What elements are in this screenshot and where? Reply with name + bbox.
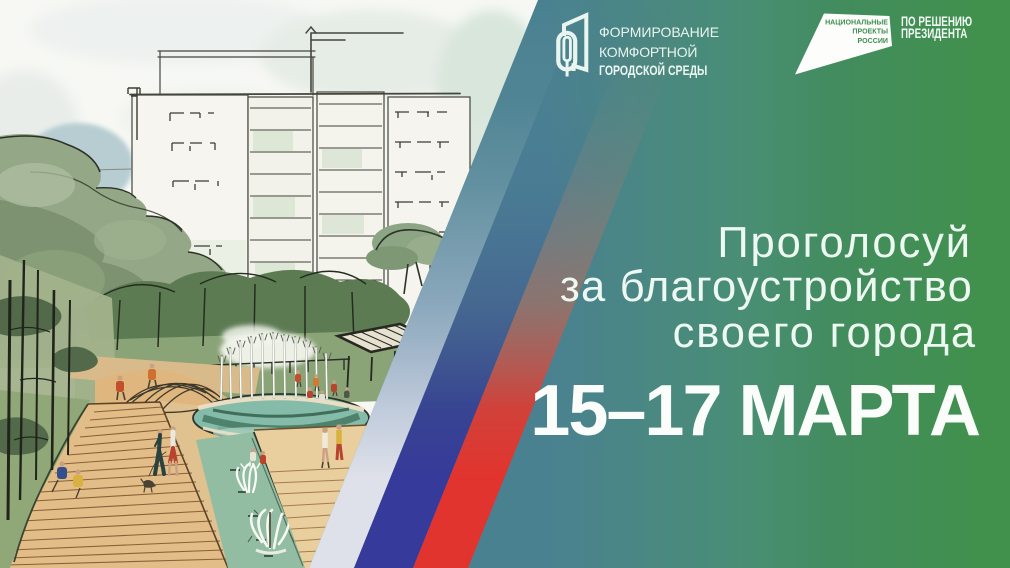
svg-text:ПРОЕКТЫ: ПРОЕКТЫ bbox=[852, 26, 888, 35]
svg-text:РОССИИ: РОССИИ bbox=[858, 36, 888, 45]
